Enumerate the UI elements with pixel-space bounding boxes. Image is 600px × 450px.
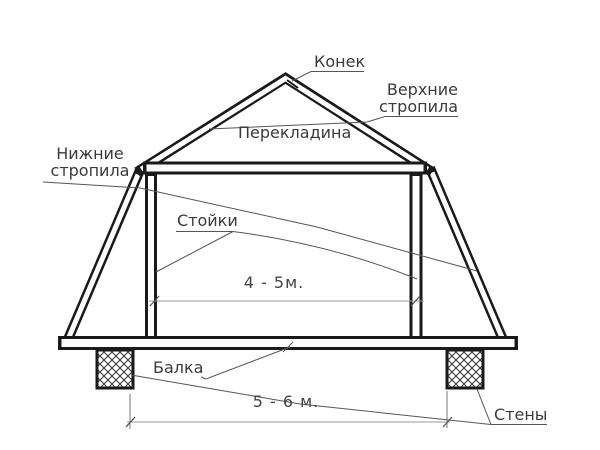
posts-leader-left	[156, 232, 233, 273]
lower-left-rafter	[66, 170, 140, 344]
ridge-label: Конек	[314, 53, 365, 70]
posts-label: Стойки	[177, 212, 238, 229]
upper-rafters-label-line2: стропила	[368, 98, 458, 115]
beam-label: Балка	[153, 359, 203, 376]
right-wall-block	[447, 350, 483, 388]
upper-rafters-label-line1: Верхние	[368, 81, 458, 98]
crossbar-label: Перекладина	[238, 124, 351, 141]
posts-leader-right	[233, 232, 417, 280]
inner-span-dimension	[149, 296, 424, 306]
left-wall-block	[97, 350, 133, 388]
ridge-leader-line	[292, 72, 364, 82]
walls-label: Стены	[494, 406, 547, 423]
roof-structure-drawing	[0, 0, 600, 450]
inner-span-dimension-text: 4 - 5м.	[228, 273, 320, 292]
mansard-roof-diagram: Конек Верхние стропила Перекладина Нижни…	[0, 0, 600, 450]
lower-right-rafter	[430, 168, 504, 342]
outer-span-dimension-text: 5 - 6 м.	[240, 392, 332, 411]
lower-rafters-label-line1: Нижние	[44, 145, 136, 162]
lower-rafters-label-line2: стропила	[44, 162, 136, 179]
beam-leader-line	[201, 347, 290, 379]
